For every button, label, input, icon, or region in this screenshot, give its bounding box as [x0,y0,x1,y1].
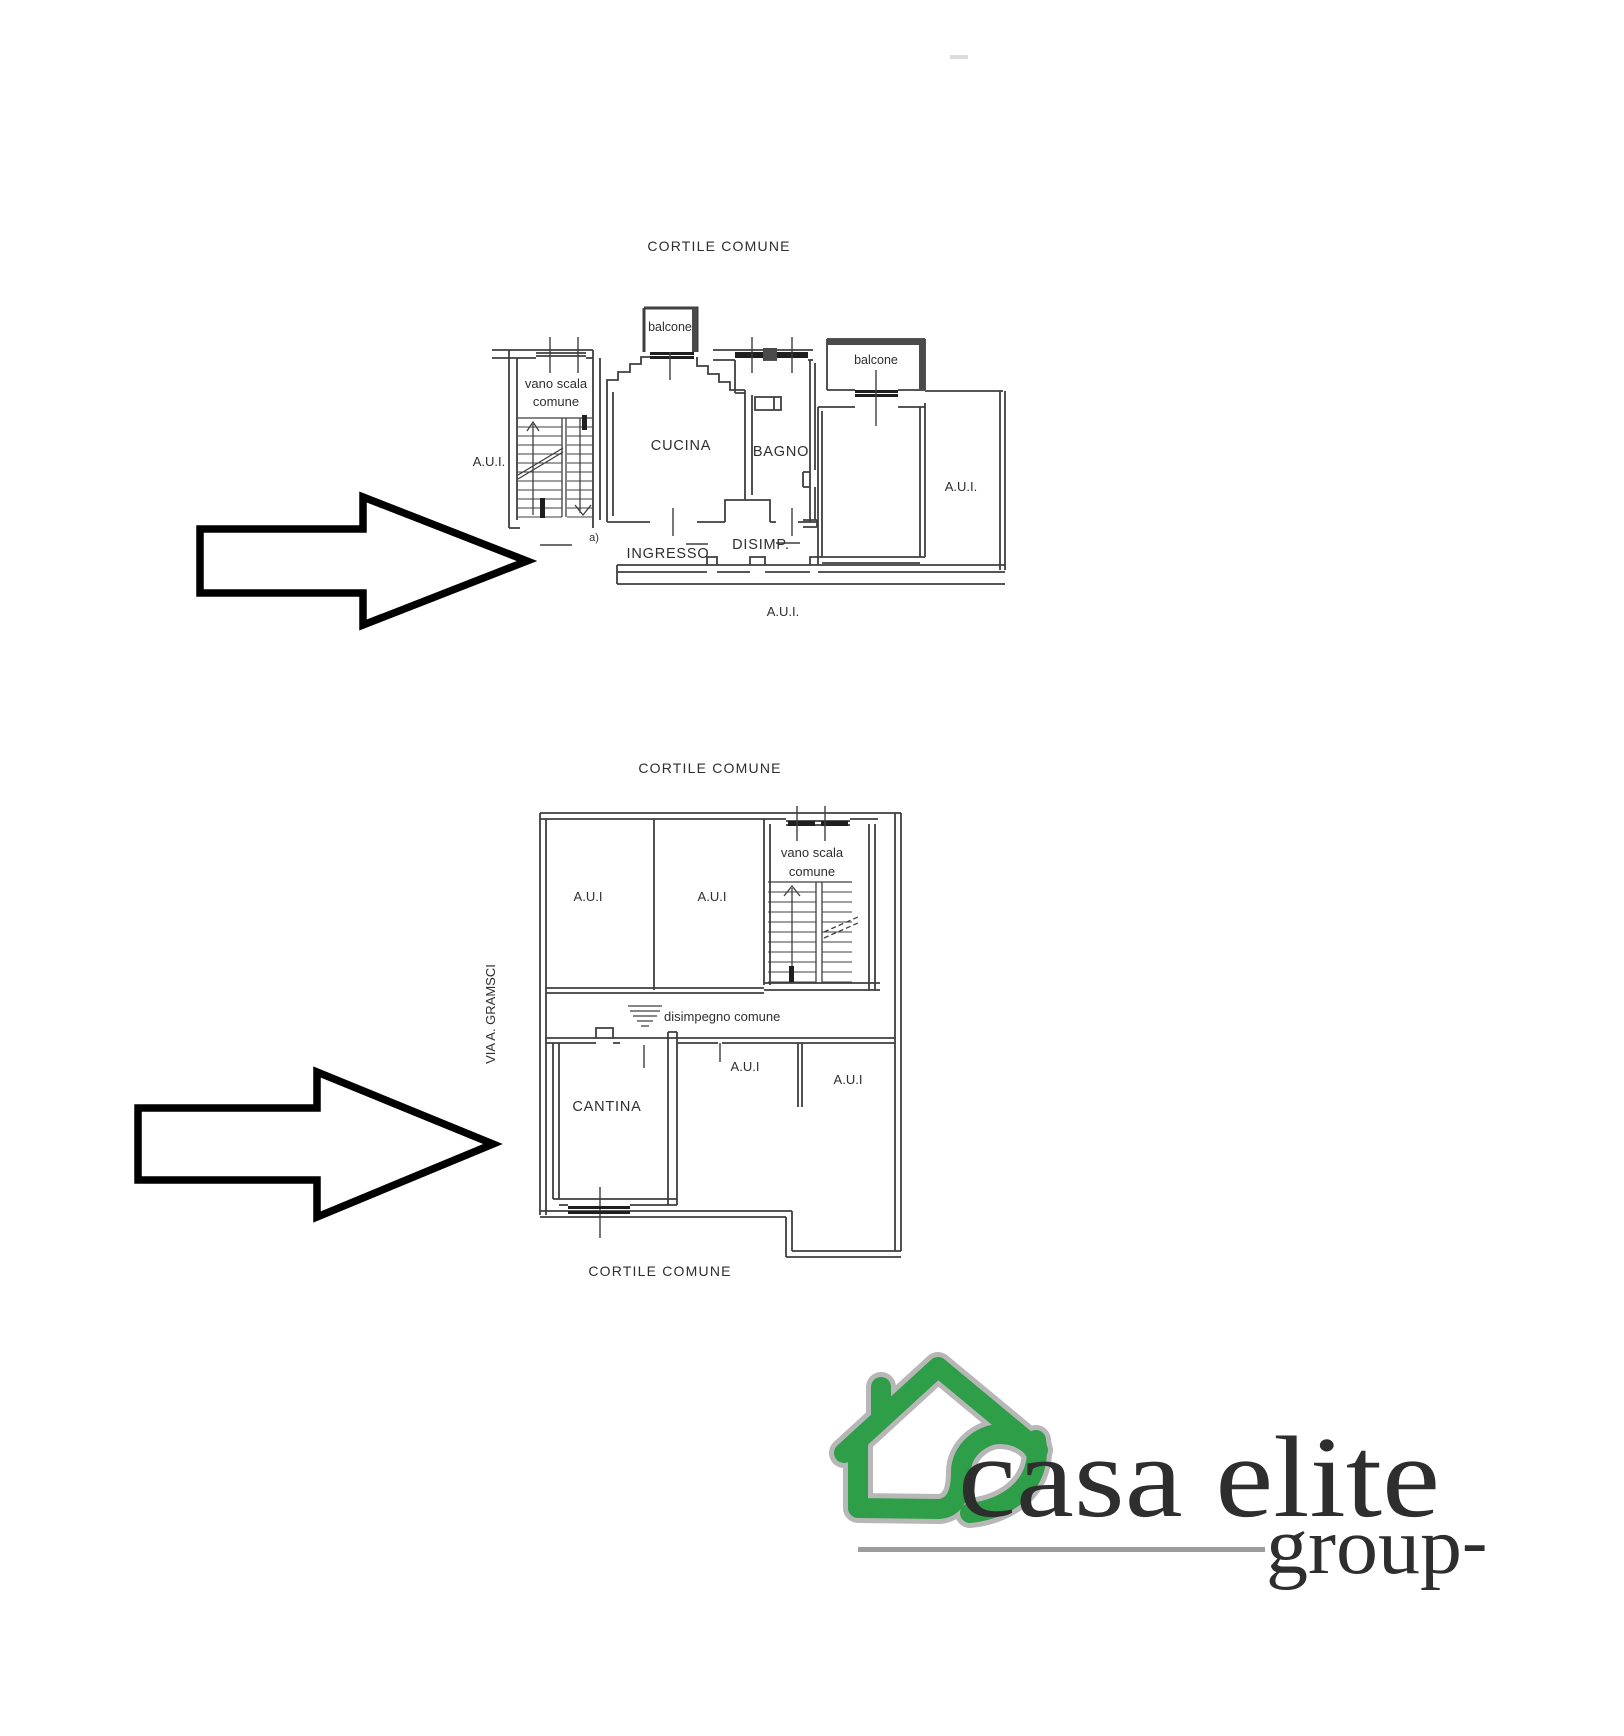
upper-aui-bottom-label: A.U.I. [767,604,800,619]
upper-courtyard-title: CORTILE COMUNE [647,238,790,254]
bathroom-label: BAGNO [753,444,809,460]
brand-subname: group [1266,1503,1462,1591]
lower-walls [540,813,901,1257]
agency-logo: casa elite group - [844,1367,1487,1591]
lower-stairwell-label1: vano scala [781,845,844,860]
hallway-hatch-icon [628,1006,662,1026]
pointer-arrows [138,497,527,1217]
lower-stairs-right-flight [822,882,852,982]
bath-pilaster [763,348,777,360]
lower-floor-plan: CORTILE COMUNE A.U.I A.U.I vano scala co… [483,760,901,1279]
upper-stairs-detail [518,418,592,517]
entrance-label: INGRESSO [627,546,710,562]
upper-balcony-left-threshold2 [650,356,694,359]
lower-stairs-mark [789,966,794,982]
lower-aui1-label: A.U.I [574,889,603,904]
lower-courtyard-bottom-label: CORTILE COMUNE [588,1263,731,1279]
cellar-door-bar2 [568,1211,630,1214]
upper-aui-right-label: A.U.I. [945,479,978,494]
upper-balcony-right-topwall [827,339,925,345]
upper-stairs-mark-bottom [540,498,545,518]
lower-stairwell-label2: comune [789,864,835,879]
cellar-door-bar1 [568,1206,630,1209]
upper-balcony-right-sidewall [919,345,925,390]
bath-window-left [735,352,763,358]
lower-aui3-label: A.U.I [731,1059,760,1074]
hallway-label: DISIMP. [732,537,790,553]
cellar-label: CANTINA [572,1099,641,1115]
upper-stairwell-label1: vano scala [525,376,588,391]
upper-stairs-mark-top [582,415,587,430]
common-hallway-label: disimpegno comune [664,1009,780,1024]
lower-aui2-label: A.U.I [698,889,727,904]
lower-window-left [788,821,815,826]
kitchen-label: CUCINA [651,438,711,454]
upper-stairwell-label2: comune [533,394,579,409]
bath-niche [803,472,810,487]
brand-underline [858,1547,1265,1552]
scanned-floorplan-page: CORTILE COMUNE balcone balcone vano scal… [0,0,1624,1736]
upper-aui-left-label: A.U.I. [473,454,506,469]
upper-note-label: a) [589,532,599,544]
upper-balcony-left-label: balcone [648,320,692,334]
floorplan-svg: CORTILE COMUNE balcone balcone vano scal… [0,0,1624,1736]
lower-stairs-ramp [824,917,858,938]
street-label: VIA A. GRAMSCI [483,964,498,1064]
upper-plan-arrow-icon [200,497,527,625]
upper-floor-plan: CORTILE COMUNE balcone balcone vano scal… [473,238,1005,619]
brand-dash: - [1462,1499,1487,1583]
upper-balcony-left-threshold [650,352,694,355]
lower-plan-arrow-icon [138,1072,493,1217]
upper-balcony-right-label: balcone [854,353,898,367]
bath-closet [755,397,781,410]
lower-courtyard-title: CORTILE COMUNE [638,760,781,776]
lower-aui4-label: A.U.I [834,1072,863,1087]
upper-balcony-left-wall [692,308,697,352]
scan-artifact [950,55,968,59]
